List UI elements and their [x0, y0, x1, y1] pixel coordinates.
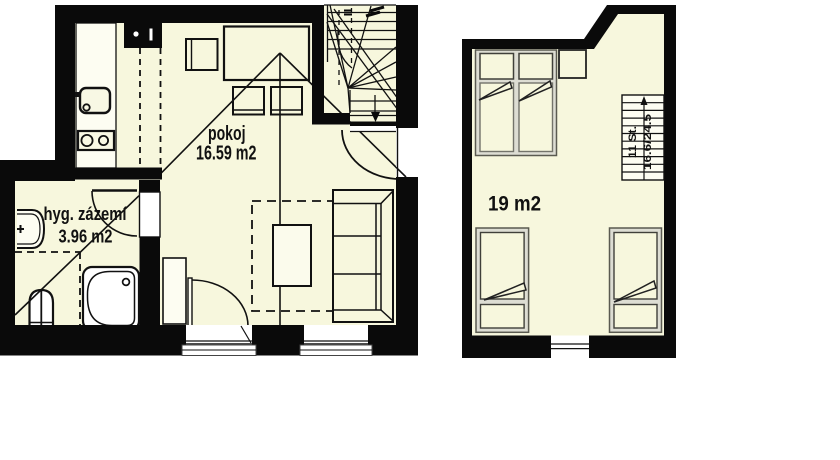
svg-text:hyg. zázemí: hyg. zázemí — [44, 204, 128, 224]
svg-text:16.6/24.5: 16.6/24.5 — [642, 114, 654, 170]
svg-text:11 St.: 11 St. — [627, 126, 639, 158]
svg-text:19 m2: 19 m2 — [488, 193, 541, 216]
svg-text:16.59 m2: 16.59 m2 — [196, 143, 257, 165]
